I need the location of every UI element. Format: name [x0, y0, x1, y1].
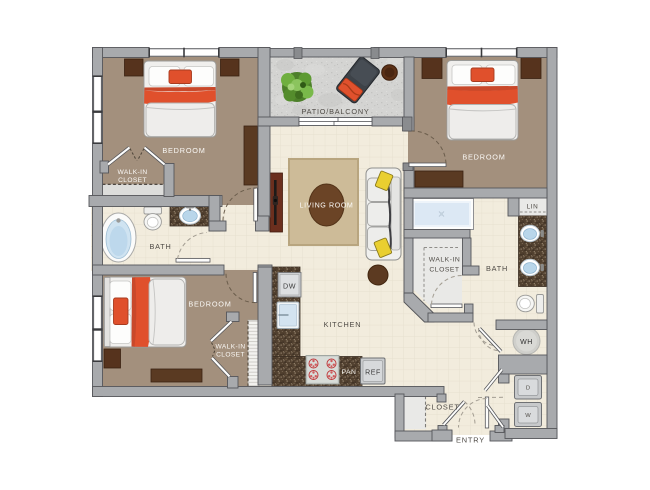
- svg-text:D: D: [526, 386, 530, 392]
- svg-text:BEDROOM: BEDROOM: [462, 153, 505, 162]
- svg-text:BATH: BATH: [486, 264, 508, 273]
- svg-text:CLOSET: CLOSET: [425, 403, 459, 412]
- svg-text:ENTRY: ENTRY: [456, 436, 485, 445]
- svg-text:WALK-IN: WALK-IN: [429, 257, 461, 264]
- svg-text:PATIO/BALCONY: PATIO/BALCONY: [301, 107, 369, 116]
- svg-text:WALK-IN: WALK-IN: [117, 169, 147, 176]
- svg-text:WALK-IN: WALK-IN: [215, 344, 245, 351]
- svg-text:BEDROOM: BEDROOM: [188, 300, 231, 309]
- svg-text:CLOSET: CLOSET: [216, 352, 245, 359]
- svg-text:BATH: BATH: [149, 242, 171, 251]
- svg-text:W: W: [525, 413, 531, 419]
- svg-text:PAN: PAN: [342, 369, 357, 376]
- svg-text:CLOSET: CLOSET: [429, 267, 459, 274]
- svg-text:CLOSET: CLOSET: [118, 177, 147, 184]
- svg-text:LIN: LIN: [527, 204, 539, 211]
- svg-text:BEDROOM: BEDROOM: [162, 146, 205, 155]
- svg-text:DW: DW: [283, 282, 296, 291]
- svg-text:LIVING ROOM: LIVING ROOM: [300, 202, 354, 210]
- svg-text:REF: REF: [365, 370, 381, 377]
- svg-text:WH: WH: [520, 339, 533, 346]
- svg-text:KITCHEN: KITCHEN: [324, 320, 362, 329]
